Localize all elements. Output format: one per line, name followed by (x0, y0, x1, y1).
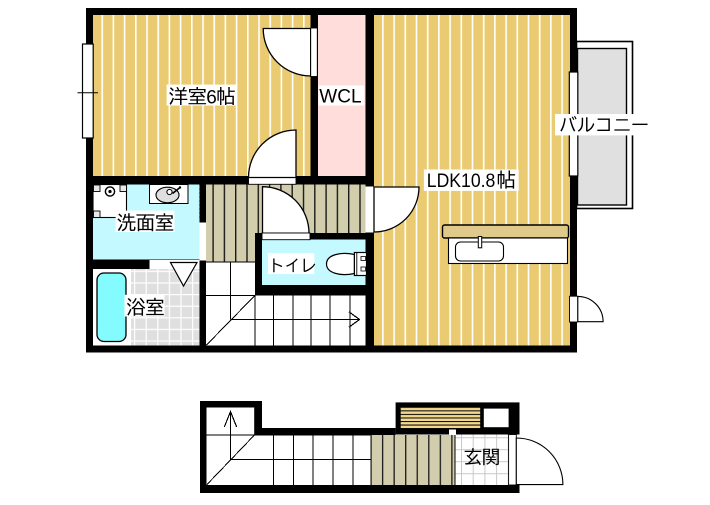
svg-text:LDK10.8: LDK10.8 (427, 171, 496, 192)
svg-text:6: 6 (206, 87, 217, 108)
svg-text:WCL: WCL (319, 87, 361, 108)
